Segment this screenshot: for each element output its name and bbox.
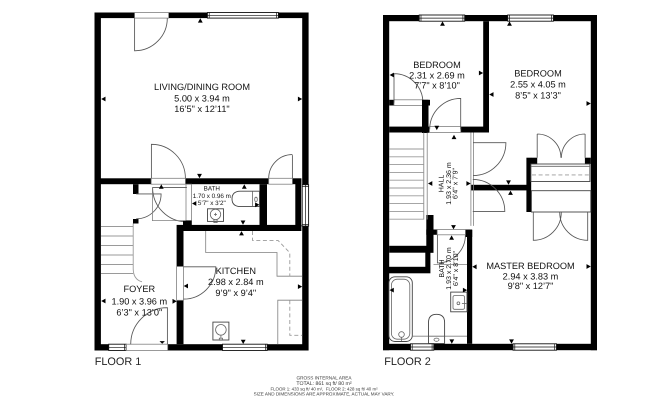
svg-text:6’3" x 13’0": 6’3" x 13’0" bbox=[116, 307, 162, 317]
svg-text:KITCHEN: KITCHEN bbox=[216, 266, 256, 276]
svg-text:2.31 x 2.69 m: 2.31 x 2.69 m bbox=[409, 70, 465, 80]
svg-text:6’4" x 8’10": 6’4" x 8’10" bbox=[453, 251, 460, 286]
svg-text:BEDROOM: BEDROOM bbox=[514, 69, 561, 79]
svg-text:6’4" x 7’9": 6’4" x 7’9" bbox=[453, 167, 460, 199]
svg-text:9’8" x 12’7": 9’8" x 12’7" bbox=[508, 281, 554, 291]
svg-text:7’7" x 8’10": 7’7" x 8’10" bbox=[414, 80, 460, 90]
svg-text:1.90 x 3.96 m: 1.90 x 3.96 m bbox=[111, 296, 167, 306]
svg-text:BEDROOM: BEDROOM bbox=[413, 60, 460, 70]
svg-text:BATH: BATH bbox=[204, 186, 221, 193]
svg-text:9’9" x 9’4": 9’9" x 9’4" bbox=[215, 288, 256, 298]
svg-text:2.94 x 3.83 m: 2.94 x 3.83 m bbox=[503, 272, 559, 282]
svg-text:FOYER: FOYER bbox=[123, 284, 155, 294]
svg-text:16’5" x 12’11": 16’5" x 12’11" bbox=[174, 104, 229, 114]
svg-text:SIZE AND DIMENSIONS ARE APPROX: SIZE AND DIMENSIONS ARE APPROXIMATE, ACT… bbox=[254, 391, 395, 396]
svg-text:FLOOR 1: FLOOR 1 bbox=[95, 356, 142, 368]
svg-text:8’5" x 13’3": 8’5" x 13’3" bbox=[515, 91, 561, 101]
svg-text:1.70 x 0.96 m: 1.70 x 0.96 m bbox=[193, 193, 231, 200]
svg-text:2.55 x 4.05 m: 2.55 x 4.05 m bbox=[510, 80, 566, 90]
svg-text:MASTER BEDROOM: MASTER BEDROOM bbox=[486, 261, 574, 271]
svg-text:LIVING/DINING ROOM: LIVING/DINING ROOM bbox=[154, 82, 250, 92]
svg-text:FLOOR 2: FLOOR 2 bbox=[384, 356, 431, 368]
svg-text:BATH: BATH bbox=[439, 259, 446, 277]
svg-text:5’7" x 3’2": 5’7" x 3’2" bbox=[198, 200, 226, 207]
svg-text:HALL: HALL bbox=[438, 175, 445, 193]
svg-text:GROSS INTERNAL AREA: GROSS INTERNAL AREA bbox=[296, 375, 352, 380]
svg-text:5.00 x 3.94 m: 5.00 x 3.94 m bbox=[174, 93, 230, 103]
svg-text:2.98 x 2.84 m: 2.98 x 2.84 m bbox=[208, 277, 264, 287]
